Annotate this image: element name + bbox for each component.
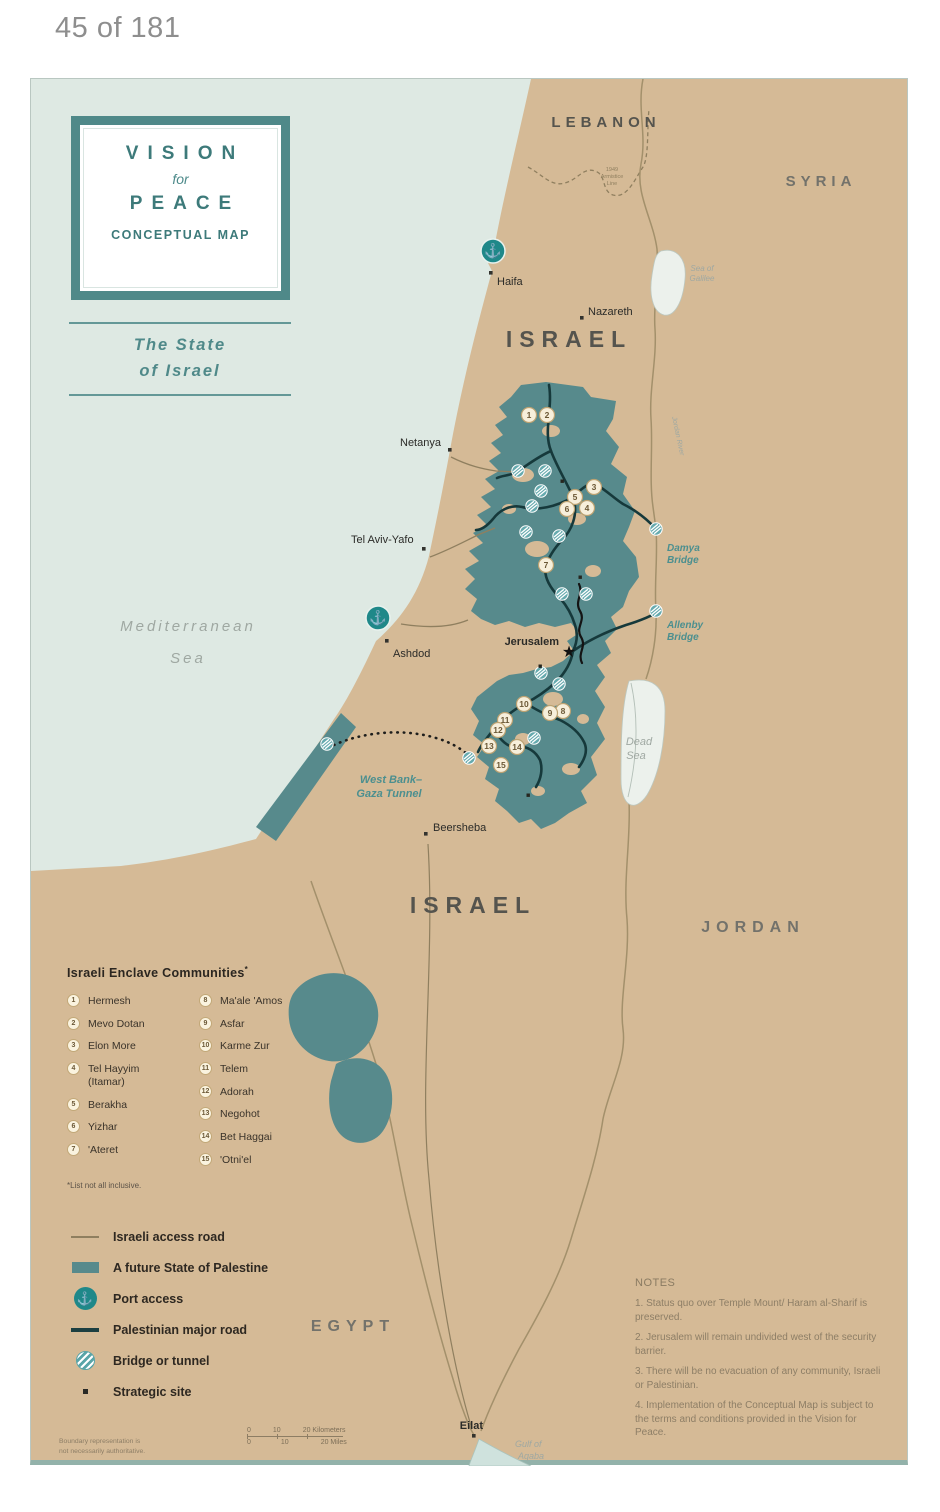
- port-icon-ashdod: [366, 606, 390, 630]
- svg-text:9: 9: [548, 708, 553, 718]
- state-label: The State of Israel: [69, 322, 291, 396]
- negev-area-south: [329, 1058, 392, 1143]
- enclave-number-badge: 2: [67, 1017, 80, 1030]
- title-conceptual-map: CONCEPTUAL MAP: [84, 228, 277, 242]
- enclave-item: 14Bet Haggai: [199, 1130, 331, 1144]
- enclave-item: 5Berakha: [67, 1098, 199, 1112]
- enclave-number-badge: 8: [199, 994, 212, 1007]
- enclave-item: 13Negohot: [199, 1107, 331, 1121]
- label-aqaba-2: Aqaba: [517, 1451, 544, 1461]
- label-aqaba-1: Gulf of: [515, 1439, 543, 1449]
- note-1: 1. Status quo over Temple Mount/ Haram a…: [635, 1297, 887, 1324]
- enclave-item: 8Ma'ale 'Amos: [199, 994, 331, 1008]
- enclave-item: 2Mevo Dotan: [67, 1017, 199, 1031]
- access-road-swatch: [67, 1236, 103, 1238]
- legend-row-port: ⚓ Port access: [67, 1283, 337, 1314]
- enclave-number-badge: 9: [199, 1017, 212, 1030]
- label-tunnel-1: West Bank–: [360, 774, 422, 786]
- enclave-item: 7'Ateret: [67, 1143, 199, 1157]
- label-jordan-river: Jordan River: [670, 415, 685, 457]
- enclave-number-badge: 15: [199, 1153, 212, 1166]
- label-ashdod: Ashdod: [393, 648, 430, 660]
- note-3: 3. There will be no evacuation of any co…: [635, 1365, 887, 1392]
- label-nazareth: Nazareth: [588, 306, 633, 318]
- enclave-column-2: 8Ma'ale 'Amos 9Asfar 10Karme Zur 11Telem…: [199, 994, 331, 1175]
- enclave-item: 15'Otni'el: [199, 1153, 331, 1167]
- enclave-number-badge: 13: [199, 1107, 212, 1120]
- enclave-number-badge: 4: [67, 1062, 80, 1075]
- jerusalem-star-icon: ★: [562, 644, 576, 661]
- enclave-item: 1Hermesh: [67, 994, 199, 1008]
- enclave-legend: Israeli Enclave Communities* 1Hermesh 2M…: [67, 965, 335, 1190]
- scale-bar: 0 10 20 Kilometers 0 10 20 Miles: [229, 1427, 399, 1446]
- label-mediterranean-1: Mediterranean: [120, 618, 256, 635]
- map-canvas: ⚓: [30, 78, 908, 1465]
- enclave-asterisk: *: [245, 965, 248, 974]
- legend-row-strategic: Strategic site: [67, 1376, 337, 1407]
- title-vision: VISION: [93, 143, 277, 165]
- title-box: VISION for PEACE CONCEPTUAL MAP: [71, 116, 290, 300]
- enclave-number-badge: 7: [67, 1143, 80, 1156]
- label-mediterranean-2: Sea: [170, 650, 206, 667]
- enclave-number-badge: 12: [199, 1085, 212, 1098]
- enclave-number-badge: 6: [67, 1120, 80, 1133]
- state-line2: of Israel: [139, 362, 220, 380]
- note-2: 2. Jerusalem will remain undivided west …: [635, 1331, 887, 1358]
- label-israel-north: ISRAEL: [506, 326, 632, 352]
- enclave-number-badge: 10: [199, 1039, 212, 1052]
- label-galilee-2: Galilee: [690, 274, 715, 283]
- svg-text:15: 15: [496, 760, 506, 770]
- label-netanya: Netanya: [400, 437, 442, 449]
- enclave-column-1: 1Hermesh 2Mevo Dotan 3Elon More 4Tel Hay…: [67, 994, 199, 1175]
- label-damya-1: Damya: [667, 543, 700, 554]
- gaza-tunnel-dotted-line: [334, 732, 467, 754]
- symbol-legend: Israeli access road A future State of Pa…: [67, 1221, 337, 1407]
- state-line1: The State: [134, 336, 226, 354]
- port-access-icon: ⚓: [67, 1287, 103, 1310]
- enclave-number-badge: 11: [199, 1062, 212, 1075]
- major-road-swatch: [67, 1328, 103, 1332]
- svg-text:14: 14: [512, 742, 522, 752]
- label-syria: SYRIA: [786, 173, 857, 190]
- sea-of-galilee-shape: [651, 250, 685, 315]
- enclave-item: 9Asfar: [199, 1017, 331, 1031]
- svg-text:13: 13: [484, 741, 494, 751]
- enclave-number-badge: 1: [67, 994, 80, 1007]
- label-tunnel-2: Gaza Tunnel: [356, 788, 422, 800]
- label-tel-aviv: Tel Aviv-Yafo: [351, 534, 414, 546]
- note-4: 4. Implementation of the Conceptual Map …: [635, 1399, 887, 1440]
- legend-row-access-road: Israeli access road: [67, 1221, 337, 1252]
- enclave-legend-title: Israeli Enclave Communities*: [67, 965, 335, 980]
- svg-text:8: 8: [561, 706, 566, 716]
- label-damya-2: Bridge: [667, 555, 699, 566]
- state-text: The State of Israel: [69, 324, 291, 394]
- west-bank-area: [465, 382, 639, 829]
- port-icon-haifa: [481, 239, 505, 263]
- svg-text:6: 6: [565, 504, 570, 514]
- label-eilat: Eilat: [460, 1420, 484, 1432]
- svg-text:10: 10: [519, 699, 529, 709]
- label-dead-sea-1: Dead: [626, 736, 653, 748]
- enclave-item: 12Adorah: [199, 1085, 331, 1099]
- strategic-site-icon: [67, 1389, 103, 1394]
- state-rule-top: [69, 322, 291, 324]
- enclave-item: 4Tel Hayyim(Itamar): [67, 1062, 199, 1089]
- enclave-item: 11Telem: [199, 1062, 331, 1076]
- bridge-tunnel-icon: [67, 1351, 103, 1370]
- label-lebanon: LEBANON: [551, 114, 660, 131]
- label-galilee-1: Sea of: [690, 264, 714, 273]
- boundary-disclaimer: Boundary representation is not necessari…: [59, 1437, 145, 1457]
- label-allenby-1: Allenby: [666, 620, 704, 631]
- svg-text:2: 2: [545, 410, 550, 420]
- label-armistice-2: Armistice: [601, 174, 624, 180]
- state-rule-bottom: [69, 394, 291, 396]
- notes-block: NOTES 1. Status quo over Temple Mount/ H…: [635, 1277, 887, 1447]
- svg-text:1: 1: [527, 410, 532, 420]
- palestine-swatch: [67, 1262, 103, 1273]
- legend-row-bridge: Bridge or tunnel: [67, 1345, 337, 1376]
- svg-text:4: 4: [585, 503, 590, 513]
- eilat-road: [426, 844, 472, 1429]
- label-israel-south: ISRAEL: [410, 892, 536, 918]
- enclave-item: 10Karme Zur: [199, 1039, 331, 1053]
- label-jerusalem: Jerusalem: [505, 636, 560, 648]
- label-dead-sea-2: Sea: [626, 750, 646, 762]
- scale-line: [247, 1436, 343, 1437]
- label-armistice-1: 1949: [606, 167, 618, 173]
- title-peace: PEACE: [93, 193, 277, 215]
- enclave-number-badge: 14: [199, 1130, 212, 1143]
- legend-row-major-road: Palestinian major road: [67, 1314, 337, 1345]
- svg-text:3: 3: [592, 482, 597, 492]
- notes-title: NOTES: [635, 1277, 887, 1289]
- svg-text:7: 7: [544, 560, 549, 570]
- title-box-inner: VISION for PEACE CONCEPTUAL MAP: [83, 128, 278, 288]
- label-jordan: JORDAN: [701, 919, 805, 936]
- title-for: for: [84, 171, 277, 187]
- legend-row-palestine: A future State of Palestine: [67, 1252, 337, 1283]
- enclave-number-badge: 3: [67, 1039, 80, 1052]
- label-allenby-2: Bridge: [667, 632, 699, 643]
- svg-text:12: 12: [493, 725, 503, 735]
- label-haifa: Haifa: [497, 276, 524, 288]
- svg-text:5: 5: [573, 492, 578, 502]
- enclave-item: 3Elon More: [67, 1039, 199, 1053]
- enclave-item: 6Yizhar: [67, 1120, 199, 1134]
- label-armistice-3: Line: [607, 181, 617, 187]
- enclave-footnote: *List not all inclusive.: [67, 1181, 335, 1190]
- page-indicator: 45 of 181: [55, 12, 180, 45]
- label-beersheba: Beersheba: [433, 822, 487, 834]
- enclave-number-badge: 5: [67, 1098, 80, 1111]
